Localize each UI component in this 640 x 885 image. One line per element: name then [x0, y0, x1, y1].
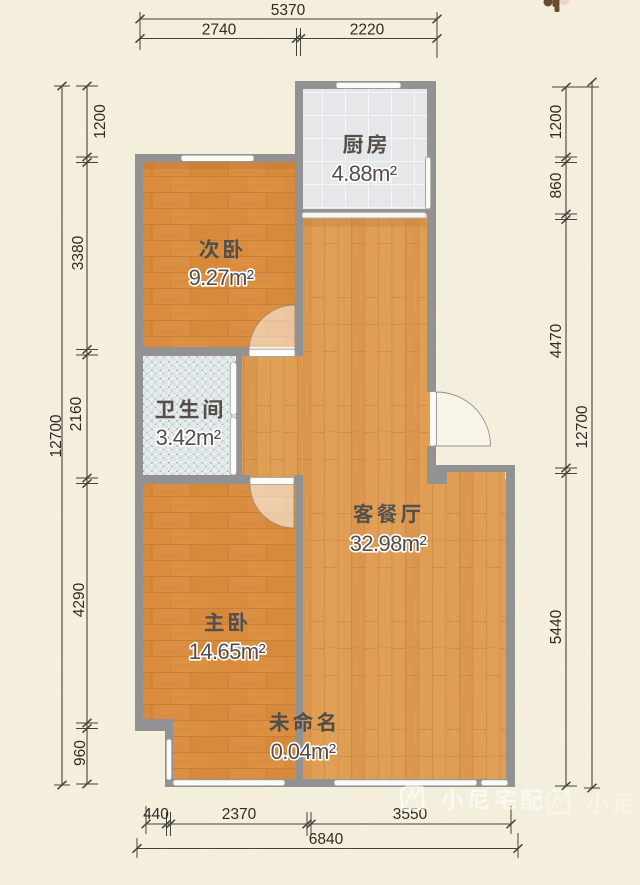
svg-text:5440: 5440 — [548, 609, 565, 644]
svg-text:960: 960 — [72, 740, 89, 766]
svg-text:440: 440 — [143, 806, 169, 823]
svg-text:4290: 4290 — [71, 582, 88, 617]
svg-text:2740: 2740 — [202, 22, 237, 39]
svg-text:1200: 1200 — [92, 104, 109, 139]
svg-text:0.04m²: 0.04m² — [271, 739, 336, 764]
svg-text:14.65m²: 14.65m² — [189, 639, 266, 664]
svg-text:4.88m²: 4.88m² — [332, 161, 397, 186]
svg-text:860: 860 — [548, 172, 565, 198]
svg-text:12700: 12700 — [48, 414, 65, 457]
svg-text:12700: 12700 — [574, 405, 591, 448]
svg-text:2220: 2220 — [350, 22, 385, 39]
svg-text:3.42m²: 3.42m² — [156, 425, 221, 450]
svg-text:32.98m²: 32.98m² — [350, 531, 427, 556]
svg-text:2370: 2370 — [222, 806, 257, 823]
svg-text:4470: 4470 — [548, 323, 565, 358]
svg-text:9.27m²: 9.27m² — [189, 265, 254, 290]
svg-text:3380: 3380 — [70, 235, 87, 270]
svg-text:6840: 6840 — [309, 831, 344, 848]
svg-text:1200: 1200 — [548, 104, 565, 139]
svg-text:2160: 2160 — [68, 396, 85, 431]
svg-text:5370: 5370 — [271, 2, 306, 19]
